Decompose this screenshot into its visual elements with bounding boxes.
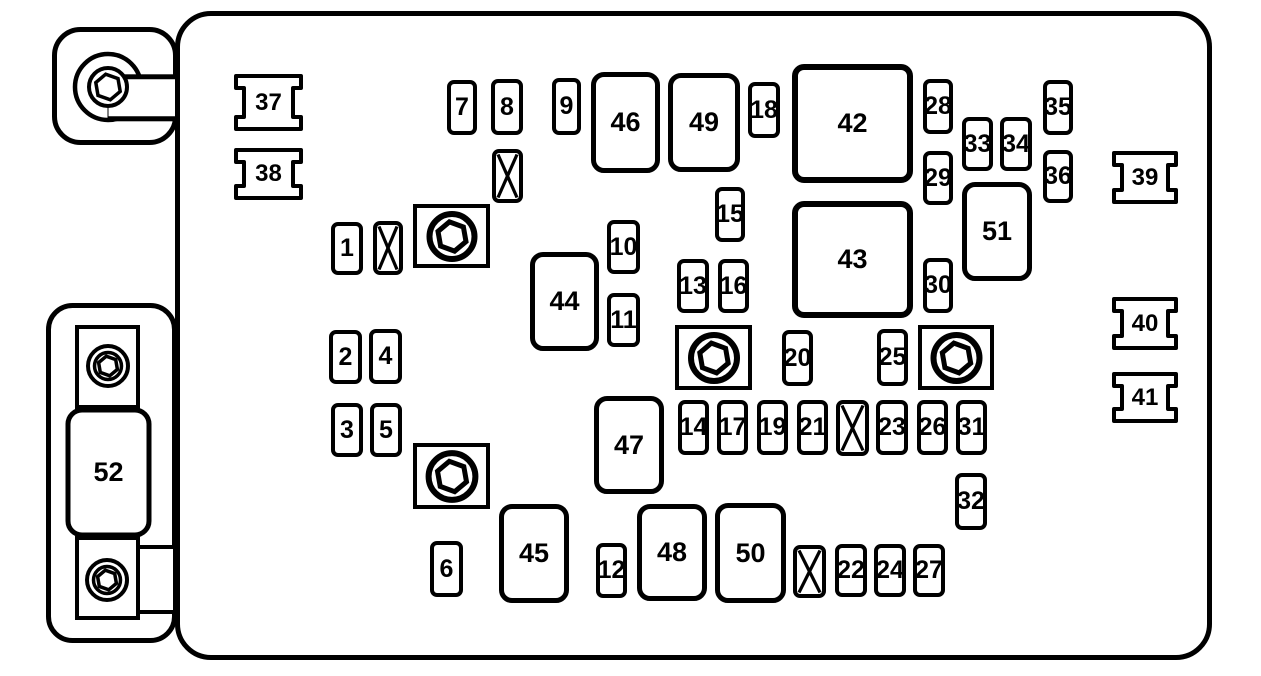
fuse-18: 18 — [748, 82, 780, 138]
fuse-27: 27 — [913, 544, 945, 597]
x-cross-icon — [840, 404, 865, 452]
fuse-19: 19 — [757, 400, 788, 455]
fuse-2: 2 — [329, 330, 362, 384]
clip-label: 40 — [1132, 310, 1159, 338]
bolt-mount — [918, 325, 994, 390]
fuse-label: 35 — [1044, 95, 1072, 120]
fuse-label: 14 — [680, 415, 708, 440]
top-mounting-bracket — [52, 27, 178, 145]
fuse-36: 36 — [1043, 150, 1073, 203]
fuse-26: 26 — [917, 400, 948, 455]
blank-fuse-slot — [793, 545, 826, 598]
fuse-label: 49 — [689, 109, 719, 136]
fuse-49: 49 — [668, 73, 740, 172]
x-cross-icon — [377, 225, 399, 271]
fuse-label: 32 — [957, 489, 985, 514]
fuse-label: 43 — [837, 246, 867, 273]
fuse-5: 5 — [370, 403, 402, 457]
fuse-label: 30 — [924, 273, 952, 298]
fuse-label: 5 — [379, 418, 393, 443]
fuse-23: 23 — [876, 400, 908, 455]
fuse-1: 1 — [331, 222, 363, 275]
fuse-label: 44 — [549, 288, 579, 315]
blank-fuse-slot — [373, 221, 403, 275]
bolt-mount — [413, 443, 490, 509]
blank-fuse-slot — [836, 400, 869, 456]
fuse-20: 20 — [782, 330, 813, 386]
clip-40: 40 — [1112, 297, 1178, 350]
fuse-51: 51 — [962, 182, 1032, 281]
fuse-label: 31 — [958, 415, 986, 440]
clip-label: 37 — [255, 89, 282, 117]
bolt-icon — [418, 209, 486, 264]
fuse-31: 31 — [956, 400, 987, 455]
fuse-label: 4 — [379, 344, 393, 369]
fuse-14: 14 — [678, 400, 709, 455]
clip-39: 39 — [1112, 151, 1178, 204]
fuse-25: 25 — [877, 329, 908, 386]
fuse-label: 36 — [1044, 164, 1072, 189]
fuse-35: 35 — [1043, 80, 1073, 135]
clip-38: 38 — [234, 148, 303, 200]
fuse-52: 52 — [68, 410, 149, 535]
clip-label: 39 — [1132, 164, 1159, 192]
fuse-label: 48 — [657, 539, 687, 566]
x-cross-icon — [496, 153, 519, 199]
fuse-label: 27 — [915, 558, 943, 583]
fuse-13: 13 — [677, 259, 709, 313]
fuse-4: 4 — [369, 329, 402, 384]
fuse-label: 51 — [982, 218, 1012, 245]
fuse-label: 29 — [924, 166, 952, 191]
fuse-label: 16 — [720, 274, 748, 299]
clip-label: 38 — [255, 160, 282, 188]
fuse-label: 17 — [719, 415, 747, 440]
fuse-label: 28 — [924, 94, 952, 119]
fuse-label: 42 — [837, 110, 867, 137]
fuse-32: 32 — [955, 473, 987, 530]
fuse-50: 50 — [715, 503, 786, 603]
fuse-22: 22 — [835, 544, 867, 597]
fuse-label: 46 — [610, 109, 640, 136]
fuse-label: 45 — [519, 540, 549, 567]
fuse-7: 7 — [447, 80, 477, 135]
bolt-icon — [680, 330, 748, 386]
bolt-icon — [923, 330, 990, 386]
fuse-42: 42 — [792, 64, 913, 183]
fuse-44: 44 — [530, 252, 599, 351]
fuse-label: 13 — [679, 274, 707, 299]
fuse-label: 22 — [837, 558, 865, 583]
fuse-43: 43 — [792, 201, 913, 318]
fuse-label: 21 — [799, 415, 827, 440]
fuse-45: 45 — [499, 504, 569, 603]
fuse-24: 24 — [874, 544, 906, 597]
fuse-29: 29 — [923, 151, 953, 205]
fuse-box-diagram: 5212345678910111213141516171819202122232… — [0, 0, 1261, 676]
fuse-label: 25 — [879, 345, 907, 370]
fuse-label: 7 — [455, 95, 469, 120]
fuse-15: 15 — [715, 187, 745, 242]
fuse-30: 30 — [923, 258, 953, 313]
bolt-mount — [675, 325, 752, 390]
x-cross-icon — [797, 549, 822, 594]
fuse-label: 20 — [784, 346, 812, 371]
fuse-label: 11 — [610, 308, 636, 333]
fuse-label: 18 — [750, 98, 778, 123]
fuse-46: 46 — [591, 72, 660, 173]
fuse-label: 12 — [598, 558, 626, 583]
fuse-28: 28 — [923, 79, 953, 134]
fuse-47: 47 — [594, 396, 664, 494]
clip-label: 41 — [1132, 384, 1159, 412]
fuse-label: 3 — [340, 418, 354, 443]
fuse-label: 33 — [964, 132, 992, 157]
fuse-label: 26 — [919, 415, 947, 440]
fuse-label: 50 — [735, 540, 765, 567]
fuse-label: 23 — [878, 415, 906, 440]
fuse-label: 6 — [440, 557, 454, 582]
fuse-9: 9 — [552, 78, 581, 135]
clip-41: 41 — [1112, 372, 1178, 423]
fuse-label: 8 — [500, 95, 514, 120]
fuse-label: 47 — [614, 432, 644, 459]
bolt-icon — [418, 448, 486, 505]
fuse-label: 24 — [876, 558, 904, 583]
fuse-label: 34 — [1002, 132, 1030, 157]
fuse-3: 3 — [331, 403, 363, 457]
fuse-21: 21 — [797, 400, 828, 455]
bolt-mount — [413, 204, 490, 268]
fuse-label: 19 — [759, 415, 787, 440]
fuse-34: 34 — [1000, 117, 1032, 171]
fuse-label: 1 — [340, 236, 354, 261]
fuse-label: 10 — [610, 235, 638, 260]
fuse-8: 8 — [491, 79, 523, 135]
fuse-label: 9 — [560, 94, 574, 119]
fuse-33: 33 — [962, 117, 993, 171]
fuse-48: 48 — [637, 504, 707, 601]
fuse-12: 12 — [596, 543, 627, 598]
fuse-11: 11 — [607, 293, 640, 347]
blank-fuse-slot — [492, 149, 523, 203]
fuse-6: 6 — [430, 541, 463, 597]
clip-37: 37 — [234, 74, 303, 131]
fuse-label: 2 — [339, 345, 353, 370]
fuse-10: 10 — [607, 220, 640, 274]
fuse-16: 16 — [718, 259, 749, 313]
fuse-17: 17 — [717, 400, 748, 455]
fuse-label: 15 — [716, 202, 744, 227]
